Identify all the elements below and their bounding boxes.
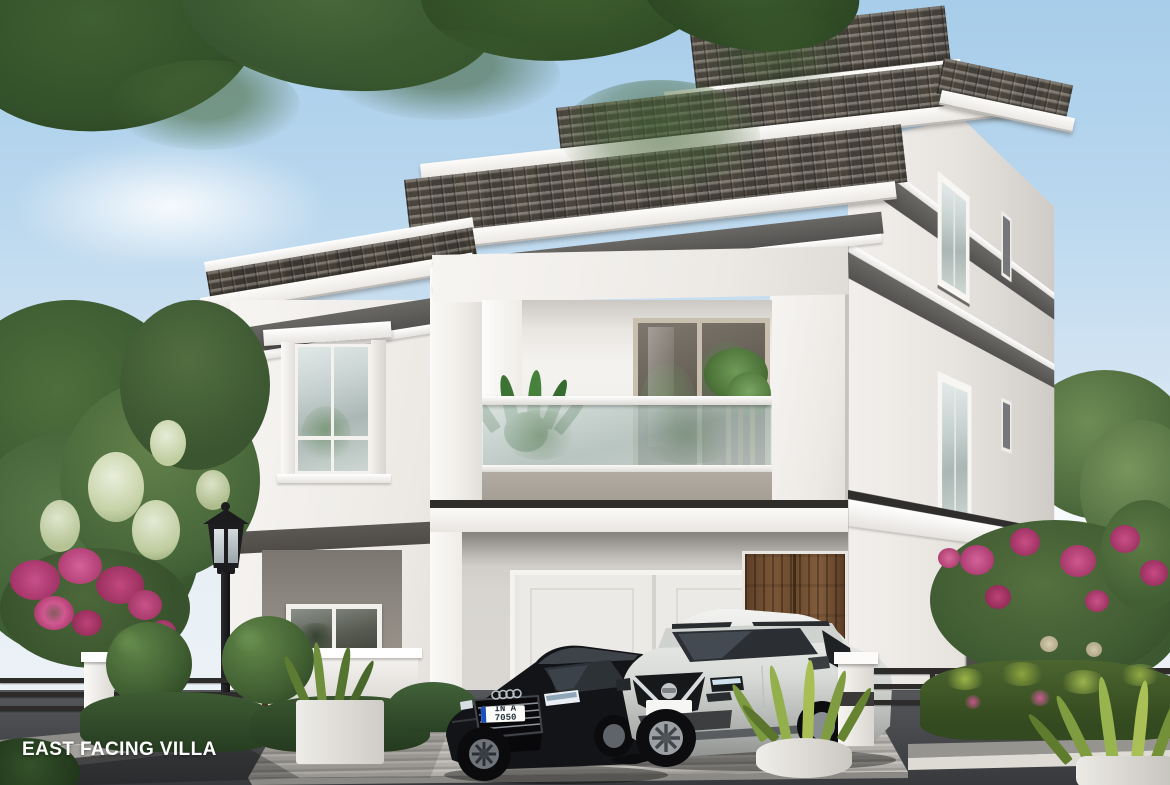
balcony [482,300,772,510]
balcony-header-wall [432,246,849,303]
railing-top-rail [482,396,772,405]
caption-east-facing-villa: EAST FACING VILLA [22,739,217,761]
villa-render: IN A 7050 [0,0,1170,785]
wing-upper-window [938,171,970,304]
carport-beam-trim [430,500,848,508]
sedan-license-plate: IN A 7050 [481,705,526,723]
carport-beam [430,508,848,532]
wing-narrow-window [1001,397,1011,453]
plate-number: IN A 7050 [486,705,526,723]
wing-narrow-window [1001,210,1011,282]
balcony-glass-railing [482,400,772,472]
cloud [10,140,330,260]
lamp-body [208,524,244,568]
balcony-right-pillar [770,268,848,538]
